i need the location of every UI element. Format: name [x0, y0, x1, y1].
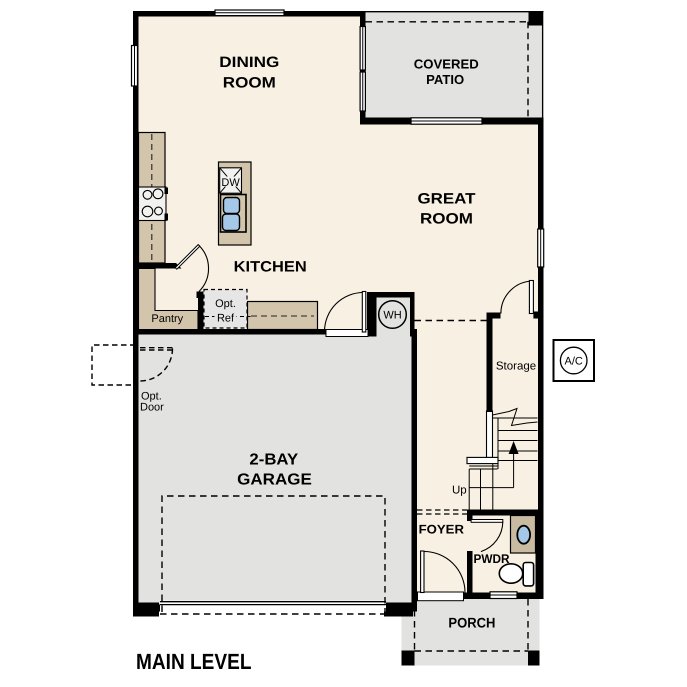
- svg-text:Opt.: Opt.: [141, 390, 162, 402]
- svg-text:Opt.: Opt.: [215, 298, 236, 310]
- svg-text:WH: WH: [383, 310, 401, 322]
- svg-text:GARAGE: GARAGE: [237, 471, 312, 488]
- svg-text:Storage: Storage: [496, 361, 536, 373]
- svg-text:MAIN LEVEL: MAIN LEVEL: [136, 649, 252, 674]
- svg-text:Pantry: Pantry: [151, 313, 183, 325]
- svg-text:DW: DW: [221, 177, 240, 189]
- svg-text:DINING: DINING: [219, 54, 279, 71]
- svg-text:COVERED: COVERED: [414, 56, 479, 71]
- svg-text:A/C: A/C: [565, 356, 583, 368]
- svg-text:Ref: Ref: [217, 313, 235, 325]
- svg-text:GREAT: GREAT: [418, 190, 476, 207]
- svg-text:Up: Up: [452, 485, 467, 497]
- svg-text:2-BAY: 2-BAY: [249, 451, 298, 468]
- svg-text:KITCHEN: KITCHEN: [234, 258, 307, 275]
- svg-text:Door: Door: [140, 402, 164, 414]
- svg-text:FOYER: FOYER: [419, 523, 464, 537]
- svg-text:ROOM: ROOM: [420, 211, 473, 228]
- svg-text:ROOM: ROOM: [223, 74, 276, 91]
- svg-text:PWDR: PWDR: [474, 552, 510, 566]
- svg-text:PORCH: PORCH: [448, 614, 495, 630]
- svg-text:PATIO: PATIO: [426, 72, 464, 87]
